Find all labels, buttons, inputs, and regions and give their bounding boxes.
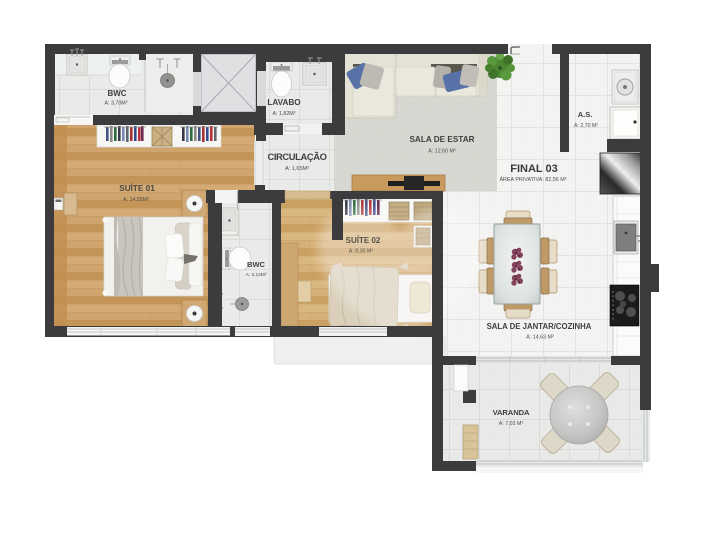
svg-text:A: 7,02 M²: A: 7,02 M² — [499, 421, 524, 427]
svg-text:A: 12,60 M²: A: 12,60 M² — [428, 149, 456, 155]
svg-text:SUÍTE 02: SUÍTE 02 — [346, 236, 381, 245]
svg-text:A.S.: A.S. — [578, 110, 593, 119]
svg-text:SALA DE ESTAR: SALA DE ESTAR — [409, 135, 474, 144]
svg-text:BWC: BWC — [247, 260, 265, 269]
svg-text:A: 14,63 M²: A: 14,63 M² — [526, 335, 554, 341]
svg-text:LAVABO: LAVABO — [267, 98, 301, 107]
svg-text:FINAL 03: FINAL 03 — [510, 163, 557, 175]
svg-text:BWC: BWC — [107, 89, 126, 98]
svg-text:SALA DE JANTAR/COZINHA: SALA DE JANTAR/COZINHA — [487, 322, 592, 331]
svg-text:CIRCULAÇÃO: CIRCULAÇÃO — [267, 151, 326, 162]
svg-text:A: 3,12M²: A: 3,12M² — [246, 272, 267, 278]
svg-text:A: 1,65M²: A: 1,65M² — [285, 166, 309, 172]
svg-text:A: 2,70 M²: A: 2,70 M² — [574, 123, 598, 129]
svg-text:VARANDA: VARANDA — [493, 408, 530, 417]
svg-text:ÁREA PRIVATIVA: 82,56 M²: ÁREA PRIVATIVA: 82,56 M² — [499, 176, 566, 183]
svg-text:SUÍTE 01: SUÍTE 01 — [119, 183, 155, 193]
svg-text:A: 8,35 M²: A: 8,35 M² — [349, 249, 374, 255]
svg-text:A: 1,82M²: A: 1,82M² — [273, 111, 296, 117]
svg-text:A: 14,05M²: A: 14,05M² — [123, 197, 149, 203]
svg-text:A: 3,70M²: A: 3,70M² — [105, 101, 128, 107]
